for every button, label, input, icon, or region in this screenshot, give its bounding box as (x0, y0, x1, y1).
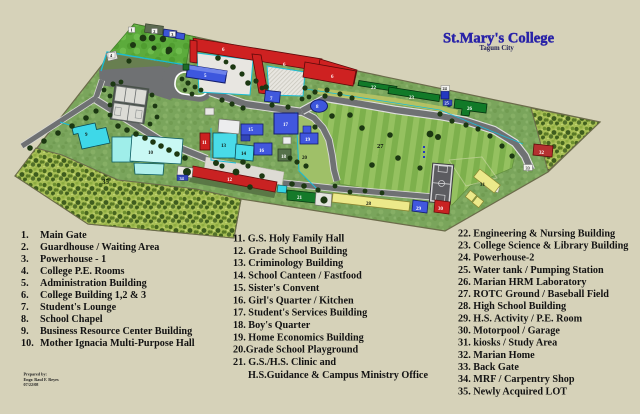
svg-text:20: 20 (302, 156, 308, 161)
svg-text:21. G.S./H.S. Clinic and: 21. G.S./H.S. Clinic and (233, 357, 336, 368)
svg-text:14. School Canteen / Fastfood: 14. School Canteen / Fastfood (233, 271, 362, 282)
svg-text:20.Grade School Playground: 20.Grade School Playground (233, 345, 359, 356)
svg-text:22. Engineering & Nursing Buil: 22. Engineering & Nursing Building (458, 228, 615, 239)
svg-text:29: 29 (416, 207, 422, 212)
svg-text:15. Sister's Convent: 15. Sister's Convent (233, 283, 320, 294)
svg-text:22: 22 (371, 86, 377, 91)
svg-text:32. Marian Home: 32. Marian Home (458, 350, 535, 361)
svg-text:30. Motorpool / Garage: 30. Motorpool / Garage (458, 326, 560, 337)
svg-text:19. Home Economics Building: 19. Home Economics Building (233, 332, 364, 343)
svg-text:12: 12 (227, 178, 233, 183)
svg-text:33: 33 (526, 166, 530, 171)
svg-text:16. Girl's Quarter / Kitchen: 16. Girl's Quarter / Kitchen (233, 295, 354, 306)
svg-text:12. Grade School Building: 12. Grade School Building (233, 246, 347, 257)
svg-text:21: 21 (297, 196, 303, 201)
svg-text:07/22/08: 07/22/08 (24, 382, 39, 387)
svg-text:23. College Science & Library: 23. College Science & Library Building (458, 241, 628, 252)
svg-text:Tagum City: Tagum City (480, 45, 515, 52)
svg-text:35: 35 (102, 178, 110, 186)
svg-text:31: 31 (480, 183, 486, 188)
svg-text:10.: 10. (21, 338, 34, 349)
svg-text:32: 32 (539, 151, 545, 156)
svg-text:Powerhouse - 1: Powerhouse - 1 (40, 254, 106, 265)
svg-text:Administration Building: Administration Building (40, 278, 147, 289)
svg-text:26: 26 (467, 107, 473, 112)
svg-text:10: 10 (148, 151, 154, 156)
svg-text:2.: 2. (21, 242, 29, 253)
svg-text:Student's Lounge: Student's Lounge (40, 302, 117, 313)
svg-text:3.: 3. (21, 254, 29, 265)
svg-text:28. High School Building: 28. High School Building (458, 301, 566, 312)
svg-text:3: 3 (171, 32, 173, 37)
svg-text:14: 14 (241, 152, 247, 157)
svg-text:Business Resource Center Build: Business Resource Center Building (40, 326, 192, 337)
svg-text:15: 15 (248, 128, 254, 133)
svg-text:8.: 8. (21, 314, 29, 325)
svg-text:2: 2 (153, 29, 155, 34)
svg-text:23: 23 (409, 96, 415, 101)
svg-text:H.S.Guidance & Campus Ministry: H.S.Guidance & Campus Ministry Office (248, 370, 428, 381)
svg-text:35. Newly Acquired LOT: 35. Newly Acquired LOT (458, 386, 567, 397)
svg-text:30: 30 (438, 207, 444, 212)
svg-text:5.: 5. (21, 278, 29, 289)
svg-text:31. kiosks / Study Area: 31. kiosks / Study Area (458, 338, 557, 349)
svg-text:College Building 1,2 & 3: College Building 1,2 & 3 (40, 290, 146, 301)
svg-text:13. Criminology Building: 13. Criminology Building (233, 258, 343, 269)
svg-text:18: 18 (281, 155, 287, 160)
svg-text:33. Back Gate: 33. Back Gate (458, 362, 519, 373)
svg-text:25: 25 (445, 101, 449, 106)
svg-text:Mother Ignacia Multi-Purpose H: Mother Ignacia Multi-Purpose Hall (40, 338, 195, 349)
svg-text:9.: 9. (21, 326, 29, 337)
svg-text:Prepared by:: Prepared by: (24, 372, 48, 377)
svg-text:11: 11 (202, 141, 207, 146)
svg-text:6.: 6. (21, 290, 29, 301)
svg-text:4.: 4. (21, 266, 29, 277)
svg-text:School Chapel: School Chapel (40, 314, 103, 325)
svg-text:27: 27 (377, 143, 384, 150)
svg-text:16: 16 (259, 149, 265, 154)
svg-text:25. Water tank / Pumping Stati: 25. Water tank / Pumping Station (458, 265, 604, 276)
svg-text:17: 17 (283, 123, 289, 128)
svg-text:18. Boy's Quarter: 18. Boy's Quarter (233, 320, 311, 331)
svg-text:17. Student's Services Buildin: 17. Student's Services Building (233, 308, 367, 319)
svg-text:College P.E. Rooms: College P.E. Rooms (40, 266, 125, 277)
svg-text:Main Gate: Main Gate (40, 230, 87, 241)
svg-text:13: 13 (221, 144, 227, 149)
svg-text:29. H.S. Activity / P.E. Room: 29. H.S. Activity / P.E. Room (458, 313, 583, 324)
svg-text:Guardhouse / Waiting Area: Guardhouse / Waiting Area (40, 242, 159, 253)
svg-text:19: 19 (305, 138, 311, 143)
svg-text:34. MRF / Carpentry Shop: 34. MRF / Carpentry Shop (458, 374, 575, 385)
svg-text:27. ROTC Ground / Baseball Fie: 27. ROTC Ground / Baseball Field (458, 289, 609, 300)
svg-text:1.: 1. (21, 230, 29, 241)
svg-text:7.: 7. (21, 302, 29, 313)
svg-text:28: 28 (366, 202, 372, 207)
svg-text:24. Powerhouse-2: 24. Powerhouse-2 (458, 253, 534, 264)
svg-text:11. G.S. Holy Family Hall: 11. G.S. Holy Family Hall (233, 234, 344, 245)
svg-text:1: 1 (131, 28, 133, 33)
svg-text:26. Marian HRM Laboratory: 26. Marian HRM Laboratory (458, 277, 586, 288)
